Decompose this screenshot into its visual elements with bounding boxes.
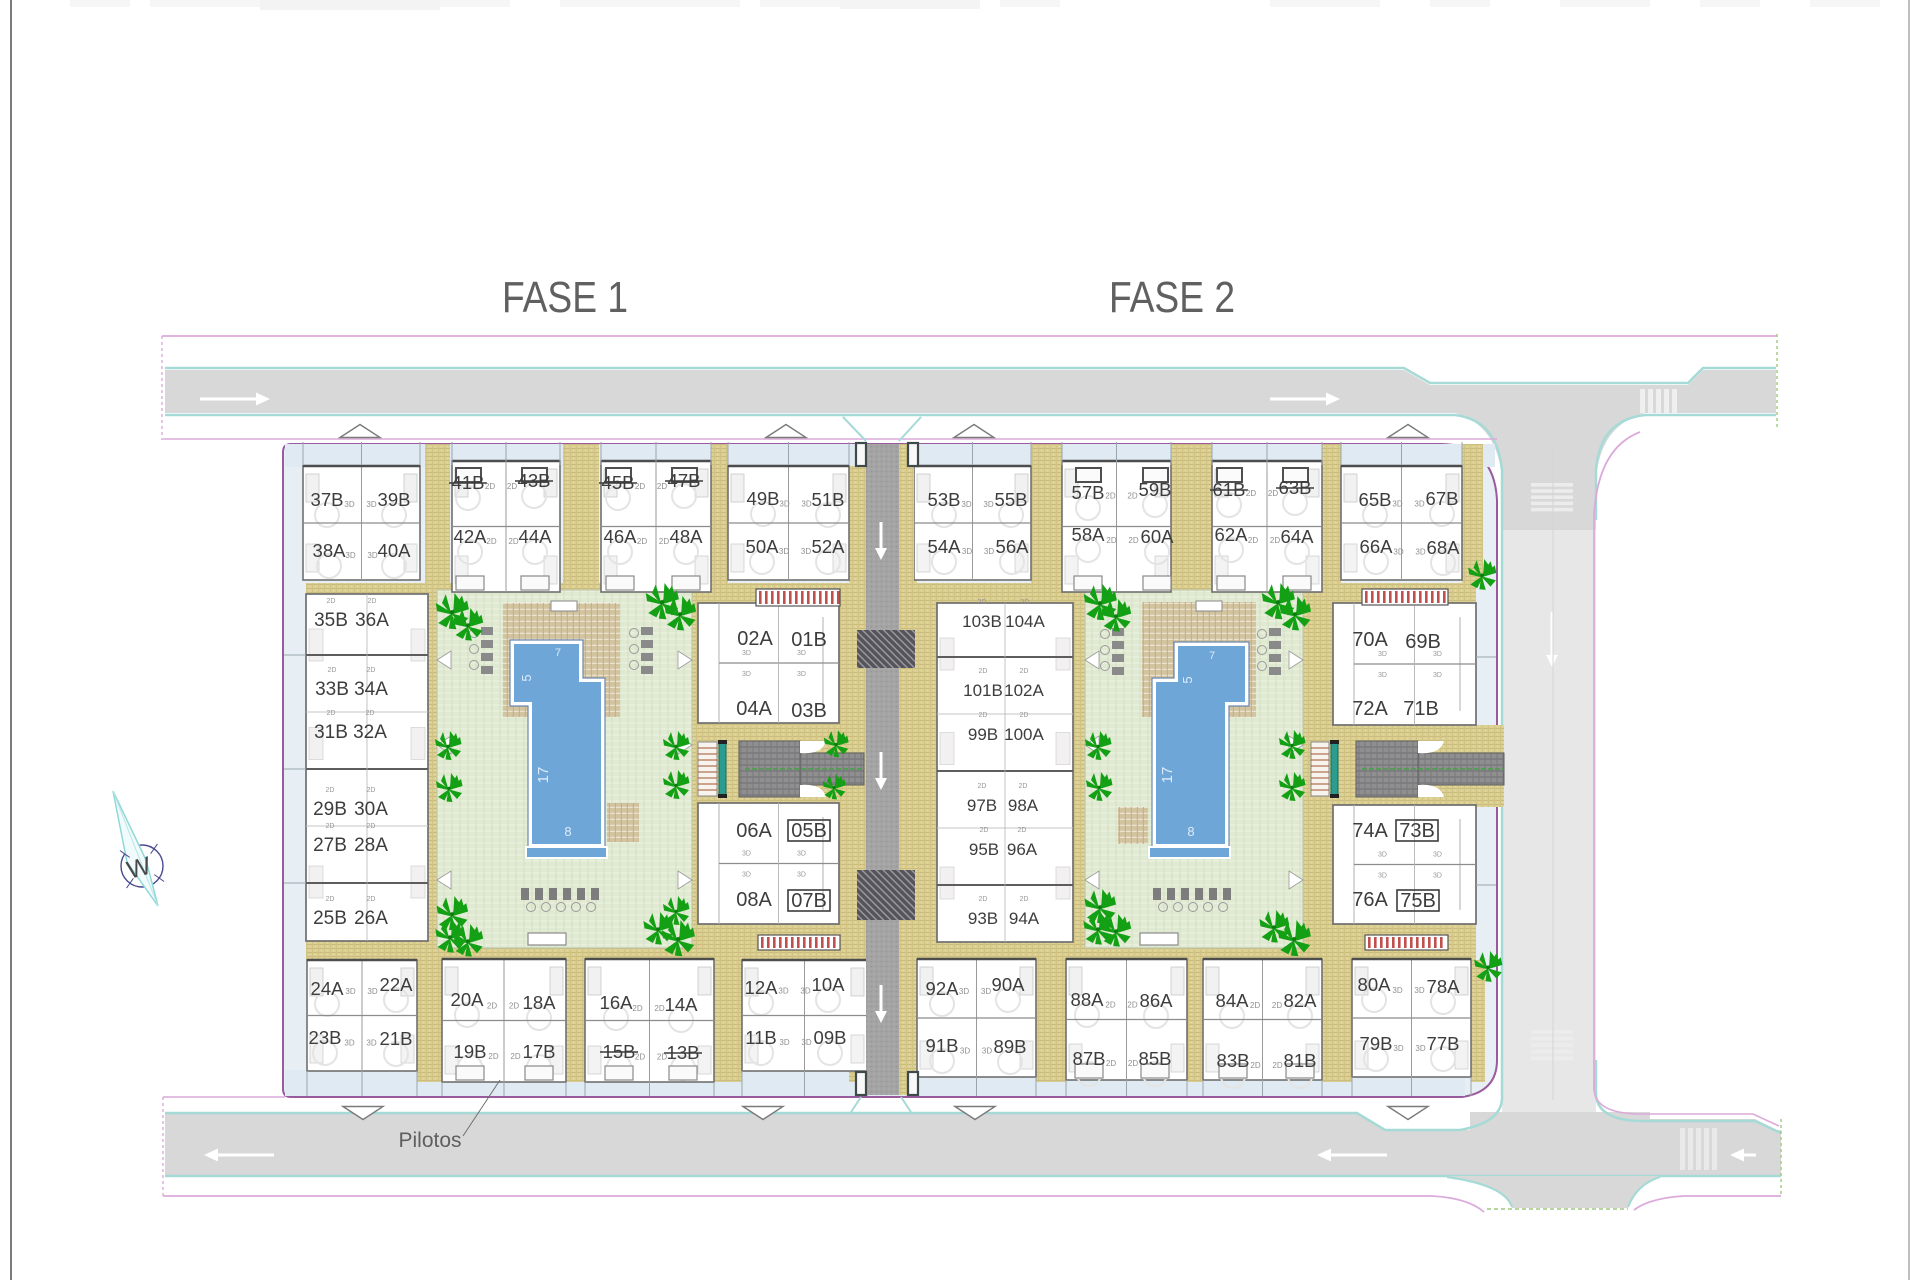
- svg-text:88A: 88A: [1071, 989, 1105, 1010]
- svg-text:2D: 2D: [508, 537, 518, 546]
- svg-text:31B: 31B: [314, 722, 348, 743]
- svg-text:68A: 68A: [1427, 537, 1461, 558]
- svg-text:39B: 39B: [378, 489, 411, 510]
- svg-text:2D: 2D: [1018, 827, 1027, 834]
- svg-text:3D: 3D: [797, 671, 806, 678]
- svg-text:2D: 2D: [657, 482, 667, 491]
- svg-text:3D: 3D: [367, 551, 377, 560]
- svg-text:97B: 97B: [967, 796, 997, 815]
- svg-text:FASE 1: FASE 1: [502, 273, 628, 322]
- svg-text:2D: 2D: [1272, 1061, 1282, 1070]
- svg-text:3D: 3D: [1393, 548, 1403, 557]
- svg-text:3D: 3D: [982, 1047, 992, 1056]
- svg-text:3D: 3D: [961, 500, 971, 509]
- svg-text:3D: 3D: [1433, 873, 1442, 880]
- svg-text:2D: 2D: [979, 712, 988, 719]
- svg-text:96A: 96A: [1007, 840, 1038, 859]
- svg-text:5: 5: [1180, 676, 1195, 683]
- svg-text:3D: 3D: [345, 551, 355, 560]
- svg-text:3D: 3D: [1378, 672, 1387, 679]
- svg-text:7: 7: [1209, 650, 1215, 662]
- svg-text:2D: 2D: [1272, 1001, 1282, 1010]
- svg-text:3D: 3D: [779, 500, 789, 509]
- svg-text:2D: 2D: [1127, 1001, 1137, 1010]
- svg-text:2D: 2D: [659, 537, 669, 546]
- svg-text:36A: 36A: [355, 610, 389, 631]
- svg-text:3D: 3D: [1378, 873, 1387, 880]
- svg-text:10A: 10A: [812, 974, 846, 995]
- svg-text:51B: 51B: [812, 489, 845, 510]
- svg-text:92A: 92A: [926, 978, 960, 999]
- svg-text:2D: 2D: [1105, 492, 1115, 501]
- svg-text:25B: 25B: [313, 908, 347, 929]
- svg-text:38A: 38A: [313, 540, 347, 561]
- svg-text:2D: 2D: [510, 1052, 520, 1061]
- svg-text:2D: 2D: [1246, 489, 1256, 498]
- svg-text:11B: 11B: [745, 1027, 777, 1048]
- svg-text:16A: 16A: [600, 992, 634, 1013]
- svg-text:3D: 3D: [984, 547, 994, 556]
- svg-text:58A: 58A: [1072, 524, 1106, 545]
- svg-text:53B: 53B: [928, 489, 961, 510]
- svg-text:18A: 18A: [523, 992, 557, 1013]
- svg-text:3D: 3D: [1415, 1044, 1425, 1053]
- svg-text:2D: 2D: [635, 1053, 645, 1062]
- svg-text:33B: 33B: [315, 679, 349, 700]
- svg-text:3D: 3D: [801, 1038, 811, 1047]
- svg-text:03B: 03B: [791, 700, 827, 722]
- svg-text:3D: 3D: [962, 547, 972, 556]
- svg-text:2D: 2D: [1128, 1059, 1138, 1068]
- svg-text:8: 8: [1187, 824, 1194, 839]
- svg-text:3D: 3D: [800, 987, 810, 996]
- svg-text:93B: 93B: [968, 909, 998, 928]
- svg-text:86A: 86A: [1140, 990, 1174, 1011]
- svg-text:52A: 52A: [812, 536, 846, 557]
- svg-text:2D: 2D: [487, 1002, 497, 1011]
- svg-text:3D: 3D: [801, 500, 811, 509]
- svg-text:2D: 2D: [1019, 783, 1028, 790]
- svg-text:3D: 3D: [779, 547, 789, 556]
- svg-text:3D: 3D: [1414, 500, 1424, 509]
- svg-text:2D: 2D: [632, 1004, 642, 1013]
- svg-text:3D: 3D: [344, 1039, 354, 1048]
- svg-text:35B: 35B: [314, 610, 348, 631]
- svg-text:2D: 2D: [1020, 712, 1029, 719]
- svg-text:2D: 2D: [486, 537, 496, 546]
- svg-text:71B: 71B: [1403, 698, 1439, 720]
- svg-text:3D: 3D: [367, 987, 377, 996]
- svg-text:2D: 2D: [367, 787, 376, 794]
- svg-text:2D: 2D: [1021, 599, 1030, 606]
- svg-text:14A: 14A: [665, 994, 699, 1015]
- svg-text:2D: 2D: [1268, 489, 1278, 498]
- svg-text:2D: 2D: [1128, 536, 1138, 545]
- svg-text:FASE 2: FASE 2: [1109, 273, 1235, 322]
- svg-text:30A: 30A: [354, 799, 388, 820]
- svg-text:2D: 2D: [328, 667, 337, 674]
- svg-text:05B: 05B: [791, 820, 827, 842]
- svg-text:84A: 84A: [1216, 990, 1250, 1011]
- svg-text:3D: 3D: [742, 851, 751, 858]
- svg-text:24A: 24A: [311, 978, 345, 999]
- svg-text:3D: 3D: [742, 872, 751, 879]
- svg-text:2D: 2D: [979, 668, 988, 675]
- svg-text:02A: 02A: [737, 628, 773, 650]
- svg-text:78A: 78A: [1427, 976, 1461, 997]
- svg-text:2D: 2D: [488, 1052, 498, 1061]
- svg-text:2D: 2D: [1127, 492, 1137, 501]
- svg-text:3D: 3D: [1415, 548, 1425, 557]
- svg-text:27B: 27B: [313, 835, 347, 856]
- svg-text:3D: 3D: [345, 987, 355, 996]
- svg-text:7: 7: [555, 647, 561, 659]
- svg-text:44A: 44A: [519, 526, 553, 547]
- svg-text:2D: 2D: [1020, 668, 1029, 675]
- svg-text:8: 8: [564, 824, 571, 839]
- svg-text:82A: 82A: [1284, 990, 1318, 1011]
- svg-text:2D: 2D: [485, 482, 495, 491]
- svg-text:2D: 2D: [1105, 1001, 1115, 1010]
- svg-text:3D: 3D: [1378, 852, 1387, 859]
- svg-text:2D: 2D: [326, 896, 335, 903]
- svg-text:65B: 65B: [1359, 489, 1392, 510]
- svg-text:57B: 57B: [1072, 482, 1105, 503]
- svg-text:50A: 50A: [746, 536, 780, 557]
- svg-text:2D: 2D: [326, 823, 335, 830]
- svg-text:26A: 26A: [354, 908, 388, 929]
- svg-text:49B: 49B: [747, 488, 780, 509]
- svg-text:64A: 64A: [1281, 526, 1315, 547]
- svg-text:70A: 70A: [1352, 629, 1388, 651]
- svg-text:2D: 2D: [326, 787, 335, 794]
- svg-text:98A: 98A: [1008, 796, 1039, 815]
- svg-text:3D: 3D: [1433, 672, 1442, 679]
- svg-text:81B: 81B: [1284, 1050, 1317, 1071]
- svg-text:20A: 20A: [451, 989, 485, 1010]
- svg-text:3D: 3D: [959, 987, 969, 996]
- svg-text:3D: 3D: [797, 872, 806, 879]
- svg-text:2D: 2D: [509, 1002, 519, 1011]
- svg-text:34A: 34A: [354, 679, 388, 700]
- svg-text:3D: 3D: [1393, 1044, 1403, 1053]
- svg-text:2D: 2D: [654, 1004, 664, 1013]
- svg-text:2D: 2D: [657, 1053, 667, 1062]
- svg-text:99B: 99B: [968, 725, 998, 744]
- svg-text:29B: 29B: [313, 799, 347, 820]
- svg-text:48A: 48A: [670, 526, 704, 547]
- svg-text:23B: 23B: [309, 1027, 342, 1048]
- svg-text:104A: 104A: [1005, 612, 1045, 631]
- svg-text:46A: 46A: [604, 526, 638, 547]
- svg-text:01B: 01B: [791, 629, 827, 651]
- svg-text:40A: 40A: [378, 540, 412, 561]
- svg-text:2D: 2D: [367, 823, 376, 830]
- svg-text:2D: 2D: [980, 827, 989, 834]
- svg-text:2D: 2D: [367, 896, 376, 903]
- svg-text:2D: 2D: [507, 482, 517, 491]
- svg-text:3D: 3D: [1392, 500, 1402, 509]
- svg-text:95B: 95B: [969, 840, 999, 859]
- svg-text:2D: 2D: [637, 537, 647, 546]
- svg-text:3D: 3D: [797, 851, 806, 858]
- svg-text:17: 17: [535, 767, 552, 784]
- svg-text:3D: 3D: [344, 500, 354, 509]
- svg-text:83B: 83B: [1217, 1050, 1250, 1071]
- svg-text:3D: 3D: [779, 1038, 789, 1047]
- svg-text:3D: 3D: [801, 547, 811, 556]
- svg-text:59B: 59B: [1139, 479, 1172, 500]
- svg-text:07B: 07B: [791, 890, 827, 912]
- svg-text:2D: 2D: [635, 482, 645, 491]
- svg-text:3D: 3D: [960, 1047, 970, 1056]
- svg-text:09B: 09B: [814, 1027, 847, 1048]
- svg-text:2D: 2D: [327, 710, 336, 717]
- svg-text:3D: 3D: [742, 671, 751, 678]
- svg-text:2D: 2D: [368, 598, 377, 605]
- svg-text:79B: 79B: [1360, 1033, 1393, 1054]
- svg-text:3D: 3D: [1392, 986, 1402, 995]
- svg-text:2D: 2D: [1270, 536, 1280, 545]
- svg-text:3D: 3D: [1414, 986, 1424, 995]
- svg-text:103B: 103B: [962, 612, 1002, 631]
- svg-text:22A: 22A: [380, 974, 414, 995]
- svg-text:55B: 55B: [995, 489, 1028, 510]
- svg-text:32A: 32A: [353, 722, 387, 743]
- svg-text:3D: 3D: [1433, 651, 1442, 658]
- svg-text:21B: 21B: [380, 1028, 413, 1049]
- svg-text:3D: 3D: [983, 500, 993, 509]
- svg-text:3D: 3D: [1433, 852, 1442, 859]
- svg-text:3D: 3D: [366, 500, 376, 509]
- svg-text:3D: 3D: [366, 1039, 376, 1048]
- svg-text:67B: 67B: [1426, 488, 1459, 509]
- svg-text:89B: 89B: [994, 1036, 1027, 1057]
- svg-text:2D: 2D: [1020, 896, 1029, 903]
- svg-text:2D: 2D: [327, 598, 336, 605]
- svg-text:94A: 94A: [1009, 909, 1040, 928]
- svg-text:77B: 77B: [1427, 1033, 1460, 1054]
- svg-text:3D: 3D: [797, 650, 806, 657]
- svg-text:73B: 73B: [1399, 820, 1435, 842]
- svg-text:2D: 2D: [1106, 1059, 1116, 1068]
- svg-text:2D: 2D: [1250, 1001, 1260, 1010]
- svg-text:3D: 3D: [981, 987, 991, 996]
- svg-text:3D: 3D: [778, 987, 788, 996]
- svg-text:06A: 06A: [736, 820, 772, 842]
- svg-text:2D: 2D: [979, 896, 988, 903]
- svg-text:2D: 2D: [366, 710, 375, 717]
- svg-text:2D: 2D: [1106, 536, 1116, 545]
- svg-text:85B: 85B: [1139, 1048, 1172, 1069]
- svg-text:37B: 37B: [311, 489, 344, 510]
- svg-text:66A: 66A: [1360, 536, 1394, 557]
- svg-text:5: 5: [519, 674, 534, 681]
- svg-text:2D: 2D: [1250, 1061, 1260, 1070]
- svg-text:17: 17: [1159, 767, 1176, 784]
- svg-text:69B: 69B: [1405, 631, 1441, 653]
- svg-text:3D: 3D: [1378, 651, 1387, 658]
- svg-text:2D: 2D: [1248, 536, 1258, 545]
- svg-text:101B: 101B: [963, 681, 1003, 700]
- svg-text:12A: 12A: [745, 977, 779, 998]
- svg-text:87B: 87B: [1073, 1048, 1106, 1069]
- svg-text:91B: 91B: [926, 1035, 959, 1056]
- svg-text:100A: 100A: [1004, 725, 1044, 744]
- svg-text:54A: 54A: [928, 536, 962, 557]
- svg-text:28A: 28A: [354, 835, 388, 856]
- svg-text:Pilotos: Pilotos: [398, 1129, 461, 1152]
- svg-text:19B: 19B: [454, 1041, 487, 1062]
- svg-text:04A: 04A: [736, 698, 772, 720]
- svg-text:75B: 75B: [1400, 890, 1436, 912]
- svg-text:80A: 80A: [1358, 974, 1392, 995]
- svg-text:90A: 90A: [992, 974, 1026, 995]
- svg-text:17B: 17B: [523, 1041, 556, 1062]
- svg-text:3D: 3D: [742, 650, 751, 657]
- svg-text:42A: 42A: [454, 526, 488, 547]
- svg-text:102A: 102A: [1004, 681, 1044, 700]
- svg-text:62A: 62A: [1215, 524, 1249, 545]
- svg-text:76A: 76A: [1352, 889, 1388, 911]
- svg-text:56A: 56A: [996, 536, 1030, 557]
- svg-text:2D: 2D: [978, 783, 987, 790]
- svg-text:2D: 2D: [978, 599, 987, 606]
- svg-text:08A: 08A: [736, 889, 772, 911]
- svg-text:60A: 60A: [1141, 526, 1175, 547]
- svg-text:74A: 74A: [1352, 820, 1388, 842]
- svg-text:2D: 2D: [367, 667, 376, 674]
- svg-text:72A: 72A: [1352, 698, 1388, 720]
